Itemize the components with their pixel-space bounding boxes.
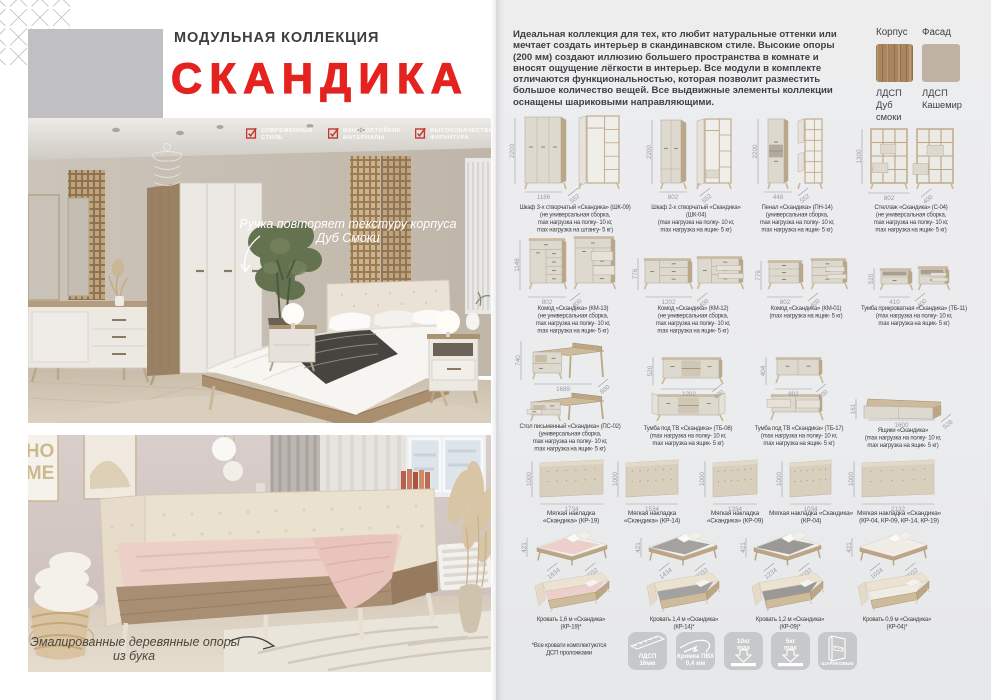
svg-text:max нагрузка на ящик- 5 кг): max нагрузка на ящик- 5 кг): [867, 443, 938, 449]
svg-text:552: 552: [799, 193, 812, 205]
svg-text:404: 404: [760, 365, 767, 376]
svg-text:Мягкая накладка: Мягкая накладка: [547, 510, 596, 517]
svg-text:max нагрузка на штангу- 5 кг): max нагрузка на штангу- 5 кг): [537, 228, 613, 234]
svg-text:Тумба прикроватная «Скандика»: Тумба прикроватная «Скандика» (ТБ-11): [861, 306, 967, 312]
svg-text:1300: 1300: [856, 149, 863, 164]
svg-text:1186: 1186: [537, 194, 551, 201]
svg-text:max нагрузка на ящик- 5 кг): max нагрузка на ящик- 5 кг): [652, 441, 723, 447]
svg-text:ДСП проложками: ДСП проложками: [546, 651, 592, 657]
svg-text:1434: 1434: [658, 566, 674, 580]
svg-text:1000: 1000: [776, 472, 783, 487]
svg-text:*Все кровати комплектуются: *Все кровати комплектуются: [532, 643, 607, 649]
svg-text:776: 776: [755, 270, 762, 281]
svg-text:(ШК-04): (ШК-04): [686, 213, 706, 219]
svg-text:520: 520: [647, 365, 654, 376]
svg-text:421: 421: [521, 542, 528, 553]
svg-text:Стол письменный «Скандика» (ПС: Стол письменный «Скандика» (ПС-02): [519, 423, 620, 430]
svg-text:1000: 1000: [526, 472, 533, 487]
svg-text:max нагрузка на ящик- 5 кг): max нагрузка на ящик- 5 кг): [875, 228, 946, 234]
svg-text:2200: 2200: [646, 145, 653, 160]
svg-text:1234: 1234: [763, 566, 779, 580]
svg-text:(КР-19)*: (КР-19)*: [561, 625, 583, 631]
svg-text:421: 421: [635, 542, 642, 553]
svg-text:776: 776: [632, 268, 639, 279]
svg-text:740: 740: [515, 355, 522, 366]
svg-text:410: 410: [889, 299, 900, 306]
svg-text:(универсальная сборка,: (универсальная сборка,: [766, 213, 829, 219]
svg-text:Комод «Скандика» (КМ-12): Комод «Скандика» (КМ-12): [658, 306, 729, 312]
svg-text:(КР-09)*: (КР-09)*: [780, 625, 802, 631]
svg-text:802: 802: [542, 299, 553, 306]
svg-text:(не универсальная сборка,: (не универсальная сборка,: [540, 213, 611, 219]
svg-text:max нагрузка на полку- 10 кг,: max нагрузка на полку- 10 кг,: [874, 220, 949, 226]
svg-text:Мягкая накладка: Мягкая накладка: [711, 510, 760, 517]
svg-text:Стеллаж «Скандика» (С-04): Стеллаж «Скандика» (С-04): [874, 205, 947, 211]
svg-text:400: 400: [922, 194, 935, 206]
svg-text:1634: 1634: [546, 566, 562, 580]
svg-text:1000: 1000: [612, 472, 619, 487]
svg-text:max нагрузка на ящик- 5 кг): max нагрузка на ящик- 5 кг): [534, 447, 605, 453]
svg-text:Кровать 1,6 м «Скандика»: Кровать 1,6 м «Скандика»: [537, 617, 606, 623]
svg-text:400: 400: [817, 389, 830, 401]
svg-text:max нагрузка на ящик- 5 кг): max нагрузка на ящик- 5 кг): [660, 228, 731, 234]
svg-text:max нагрузка на полку- 10 кг,: max нагрузка на полку- 10 кг,: [536, 321, 611, 327]
svg-text:(универсальная сборка,: (универсальная сборка,: [539, 432, 602, 438]
svg-text:(max нагрузка на полку- 10 кг,: (max нагрузка на полку- 10 кг,: [865, 436, 942, 442]
svg-text:«Скандика» (КР-14): «Скандика» (КР-14): [624, 518, 680, 525]
svg-text:Пенал «Скандика» (ПН-14): Пенал «Скандика» (ПН-14): [761, 205, 832, 211]
svg-text:max нагрузка на ящик- 5 кг): max нагрузка на ящик- 5 кг): [537, 329, 608, 335]
svg-text:Тумба под ТВ «Скандика» (ТБ-17: Тумба под ТВ «Скандика» (ТБ-17): [755, 426, 844, 432]
svg-text:max нагрузка на полку- 10 кг,: max нагрузка на полку- 10 кг,: [656, 321, 731, 327]
svg-text:552: 552: [701, 193, 714, 205]
svg-text:(КР-14)*: (КР-14)*: [674, 625, 696, 631]
svg-text:max нагрузка на полку- 10 кг,: max нагрузка на полку- 10 кг,: [538, 220, 613, 226]
svg-text:Мягкая накладка «Скандика»: Мягкая накладка «Скандика»: [857, 510, 941, 517]
svg-text:max нагрузка на ящик- 5 кг): max нагрузка на ящик- 5 кг): [878, 321, 949, 327]
svg-text:Мягкая накладка «Скандика»: Мягкая накладка «Скандика»: [769, 510, 853, 517]
svg-text:802: 802: [884, 195, 895, 202]
svg-text:421: 421: [740, 542, 747, 553]
svg-text:Кровать 0,9 м «Скандика»: Кровать 0,9 м «Скандика»: [863, 617, 932, 623]
svg-text:161: 161: [850, 403, 857, 414]
svg-text:max нагрузка на ящик- 5 кг): max нагрузка на ящик- 5 кг): [761, 228, 832, 234]
svg-text:802: 802: [668, 194, 679, 201]
svg-text:600: 600: [599, 384, 612, 396]
svg-text:max нагрузка на полку- 10 кг,: max нагрузка на полку- 10 кг,: [760, 220, 835, 226]
svg-text:1689: 1689: [556, 386, 571, 393]
svg-text:448: 448: [773, 194, 784, 201]
svg-text:Кровать 1,2 м «Скандика»: Кровать 1,2 м «Скандика»: [756, 617, 825, 623]
svg-text:Кровать 1,4 м «Скандика»: Кровать 1,4 м «Скандика»: [650, 617, 719, 623]
svg-text:(не универсальная сборка,: (не универсальная сборка,: [538, 314, 609, 320]
svg-text:(не универсальная сборка,: (не универсальная сборка,: [876, 213, 947, 219]
svg-text:(max нагрузка на полку- 10 кг,: (max нагрузка на полку- 10 кг,: [650, 434, 727, 440]
svg-text:421: 421: [846, 542, 853, 553]
svg-text:(не универсальная сборка,: (не универсальная сборка,: [658, 314, 729, 320]
svg-text:802: 802: [788, 391, 799, 398]
svg-text:1000: 1000: [848, 472, 855, 487]
svg-text:802: 802: [780, 299, 791, 306]
svg-text:2200: 2200: [509, 144, 516, 159]
svg-text:max нагрузка на полку- 10 кг,: max нагрузка на полку- 10 кг,: [533, 439, 608, 445]
svg-text:(max нагрузка на полку- 10 кг,: (max нагрузка на полку- 10 кг,: [761, 434, 838, 440]
svg-text:520: 520: [868, 273, 875, 284]
svg-text:«Скандика» (КР-09): «Скандика» (КР-09): [707, 518, 763, 525]
svg-text:(КР-04, КР-09, КР-14, КР-19): (КР-04, КР-09, КР-14, КР-19): [859, 518, 939, 525]
svg-text:1000: 1000: [699, 472, 706, 487]
svg-text:(max нагрузка на полку- 10 кг,: (max нагрузка на полку- 10 кг,: [876, 314, 953, 320]
svg-text:«Скандика» (КР-19): «Скандика» (КР-19): [543, 518, 599, 525]
svg-text:1148: 1148: [514, 258, 521, 272]
svg-text:1202: 1202: [682, 391, 697, 398]
svg-text:528: 528: [942, 419, 955, 431]
svg-text:Тумба под ТВ «Скандика» (ТБ-08: Тумба под ТВ «Скандика» (ТБ-08): [644, 426, 733, 432]
svg-text:(КР-04): (КР-04): [801, 518, 821, 525]
svg-text:Комод «Скандика» (КМ-13): Комод «Скандика» (КМ-13): [538, 306, 609, 312]
svg-text:Шкаф 2-х створчатый «Скандика»: Шкаф 2-х створчатый «Скандика»: [651, 204, 741, 211]
svg-text:max нагрузка на ящик- 5 кг): max нагрузка на ящик- 5 кг): [657, 329, 728, 335]
svg-text:Ящики «Скандика»: Ящики «Скандика»: [878, 428, 929, 434]
svg-text:552: 552: [569, 193, 582, 205]
svg-text:Комод «Скандика» (КМ-01): Комод «Скандика» (КМ-01): [771, 306, 842, 312]
svg-text:(max нагрузка на полку- 10 кг,: (max нагрузка на полку- 10 кг,: [658, 220, 735, 226]
svg-text:2200: 2200: [752, 144, 759, 159]
svg-text:1202: 1202: [661, 299, 676, 306]
svg-text:(max нагрузка на ящик- 5 кг): (max нагрузка на ящик- 5 кг): [770, 314, 843, 320]
svg-text:max нагрузка на ящик- 5 кг): max нагрузка на ящик- 5 кг): [763, 441, 834, 447]
svg-text:Мягкая накладка: Мягкая накладка: [628, 510, 677, 517]
svg-text:Шкаф 3-х створчатый «Скандика»: Шкаф 3-х створчатый «Скандика» (ШК-09): [519, 204, 630, 211]
svg-text:1034: 1034: [869, 566, 885, 580]
svg-text:(КР-04)*: (КР-04)*: [887, 625, 909, 631]
